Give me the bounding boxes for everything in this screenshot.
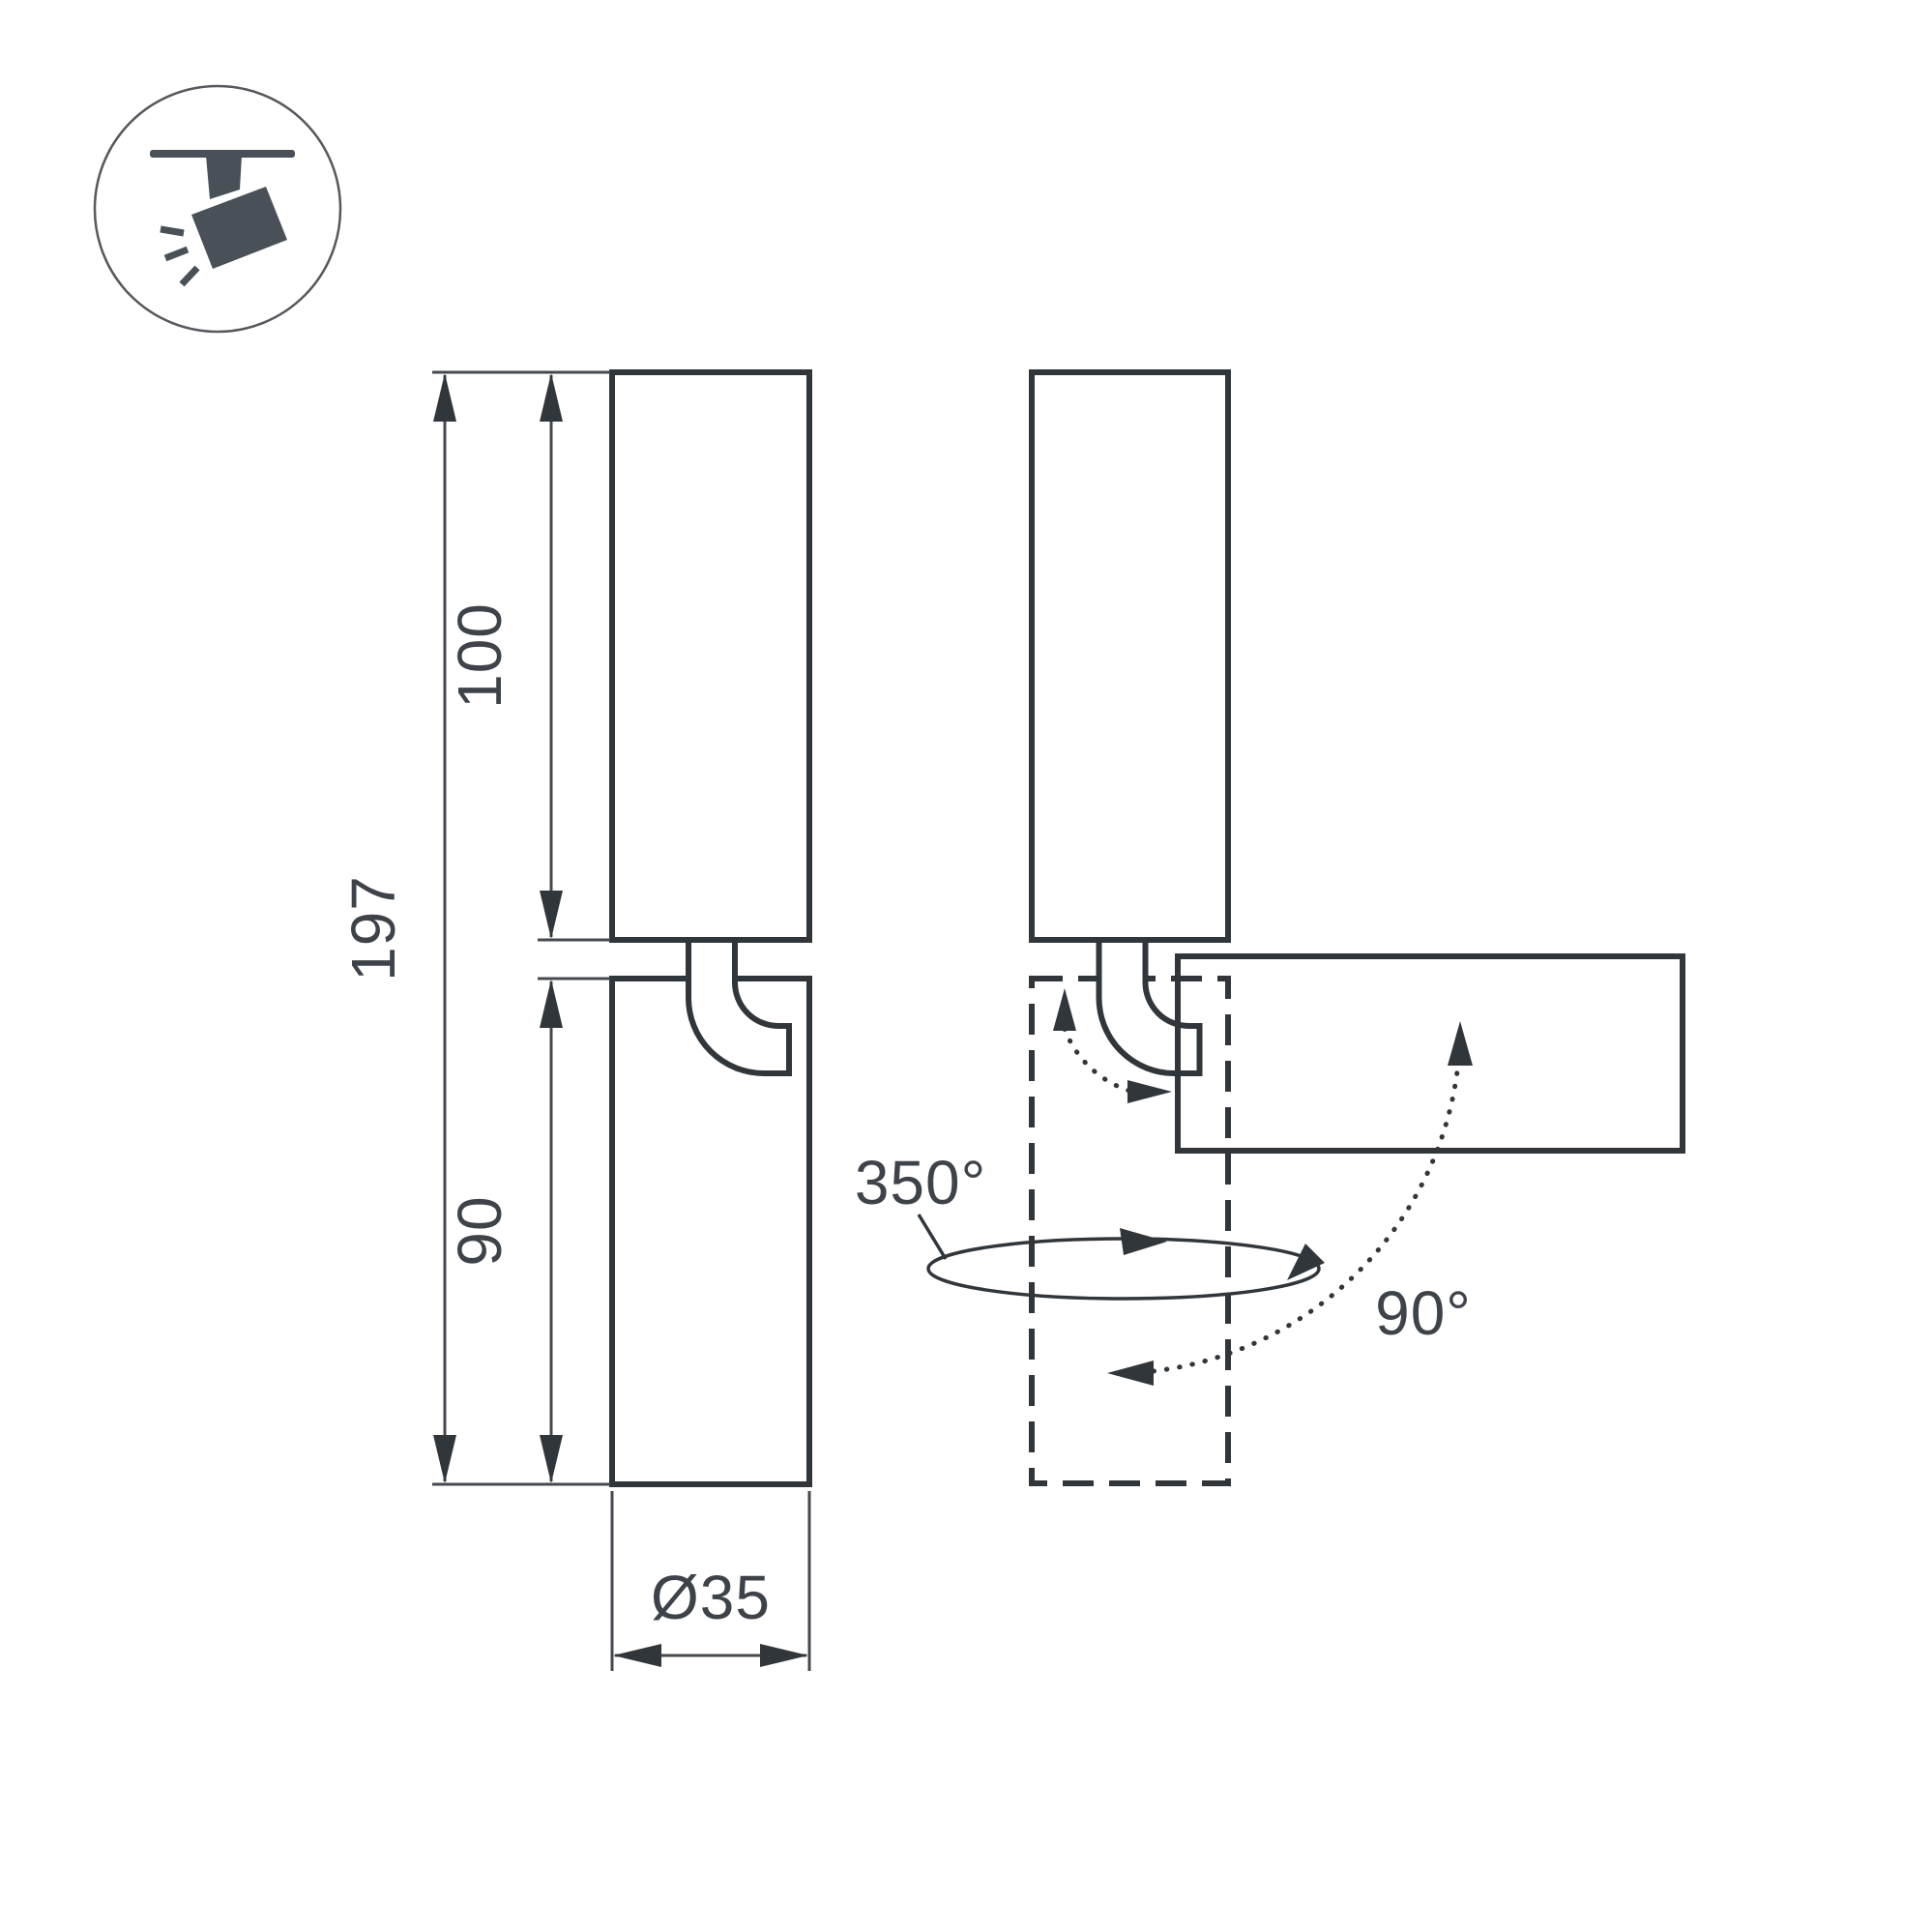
- tilt-large-arrow-up: [1448, 1021, 1473, 1066]
- pan-angle-label: 350°: [855, 1148, 986, 1217]
- upper-height-label: 100: [445, 602, 514, 709]
- front-swivel-elbow: [688, 940, 789, 1073]
- tilt-rotation-annotation: 90°: [1107, 1021, 1473, 1386]
- dimension-diameter: Ø35: [612, 1491, 809, 1671]
- technical-drawing-page: 197 100 90 Ø35 350°: [0, 0, 1932, 1932]
- front-upper-body: [612, 372, 809, 940]
- side-upper-body: [1032, 372, 1228, 940]
- tilt-angle-label: 90°: [1375, 1278, 1472, 1348]
- dimension-lower-height: 90: [445, 979, 610, 1483]
- front-view: [612, 372, 809, 1484]
- overall-height-label: 197: [338, 875, 408, 981]
- lower-height-label: 90: [445, 1195, 514, 1266]
- pan-arrow-east: [1120, 1228, 1167, 1255]
- side-view: [1032, 372, 1683, 1483]
- diameter-label: Ø35: [651, 1563, 771, 1632]
- side-swivel-elbow: [1099, 940, 1200, 1073]
- pan-rotation-annotation: 350°: [855, 1148, 1325, 1299]
- spotlight-dimension-diagram: 197 100 90 Ø35 350°: [0, 0, 1932, 1932]
- tilt-large-arrow-west: [1107, 1361, 1154, 1386]
- dimension-upper-height: 100: [445, 373, 610, 940]
- pan-arrow-southwest: [1287, 1244, 1325, 1280]
- tilt-small-arrow-up: [1053, 988, 1076, 1031]
- side-lamp-head-rotated: [1178, 956, 1683, 1151]
- dimension-overall-height: 197: [338, 372, 610, 1484]
- tilt-small-arrow-right: [1127, 1080, 1172, 1103]
- pan-label-leader: [919, 1215, 946, 1259]
- track-spotlight-icon: [95, 86, 340, 332]
